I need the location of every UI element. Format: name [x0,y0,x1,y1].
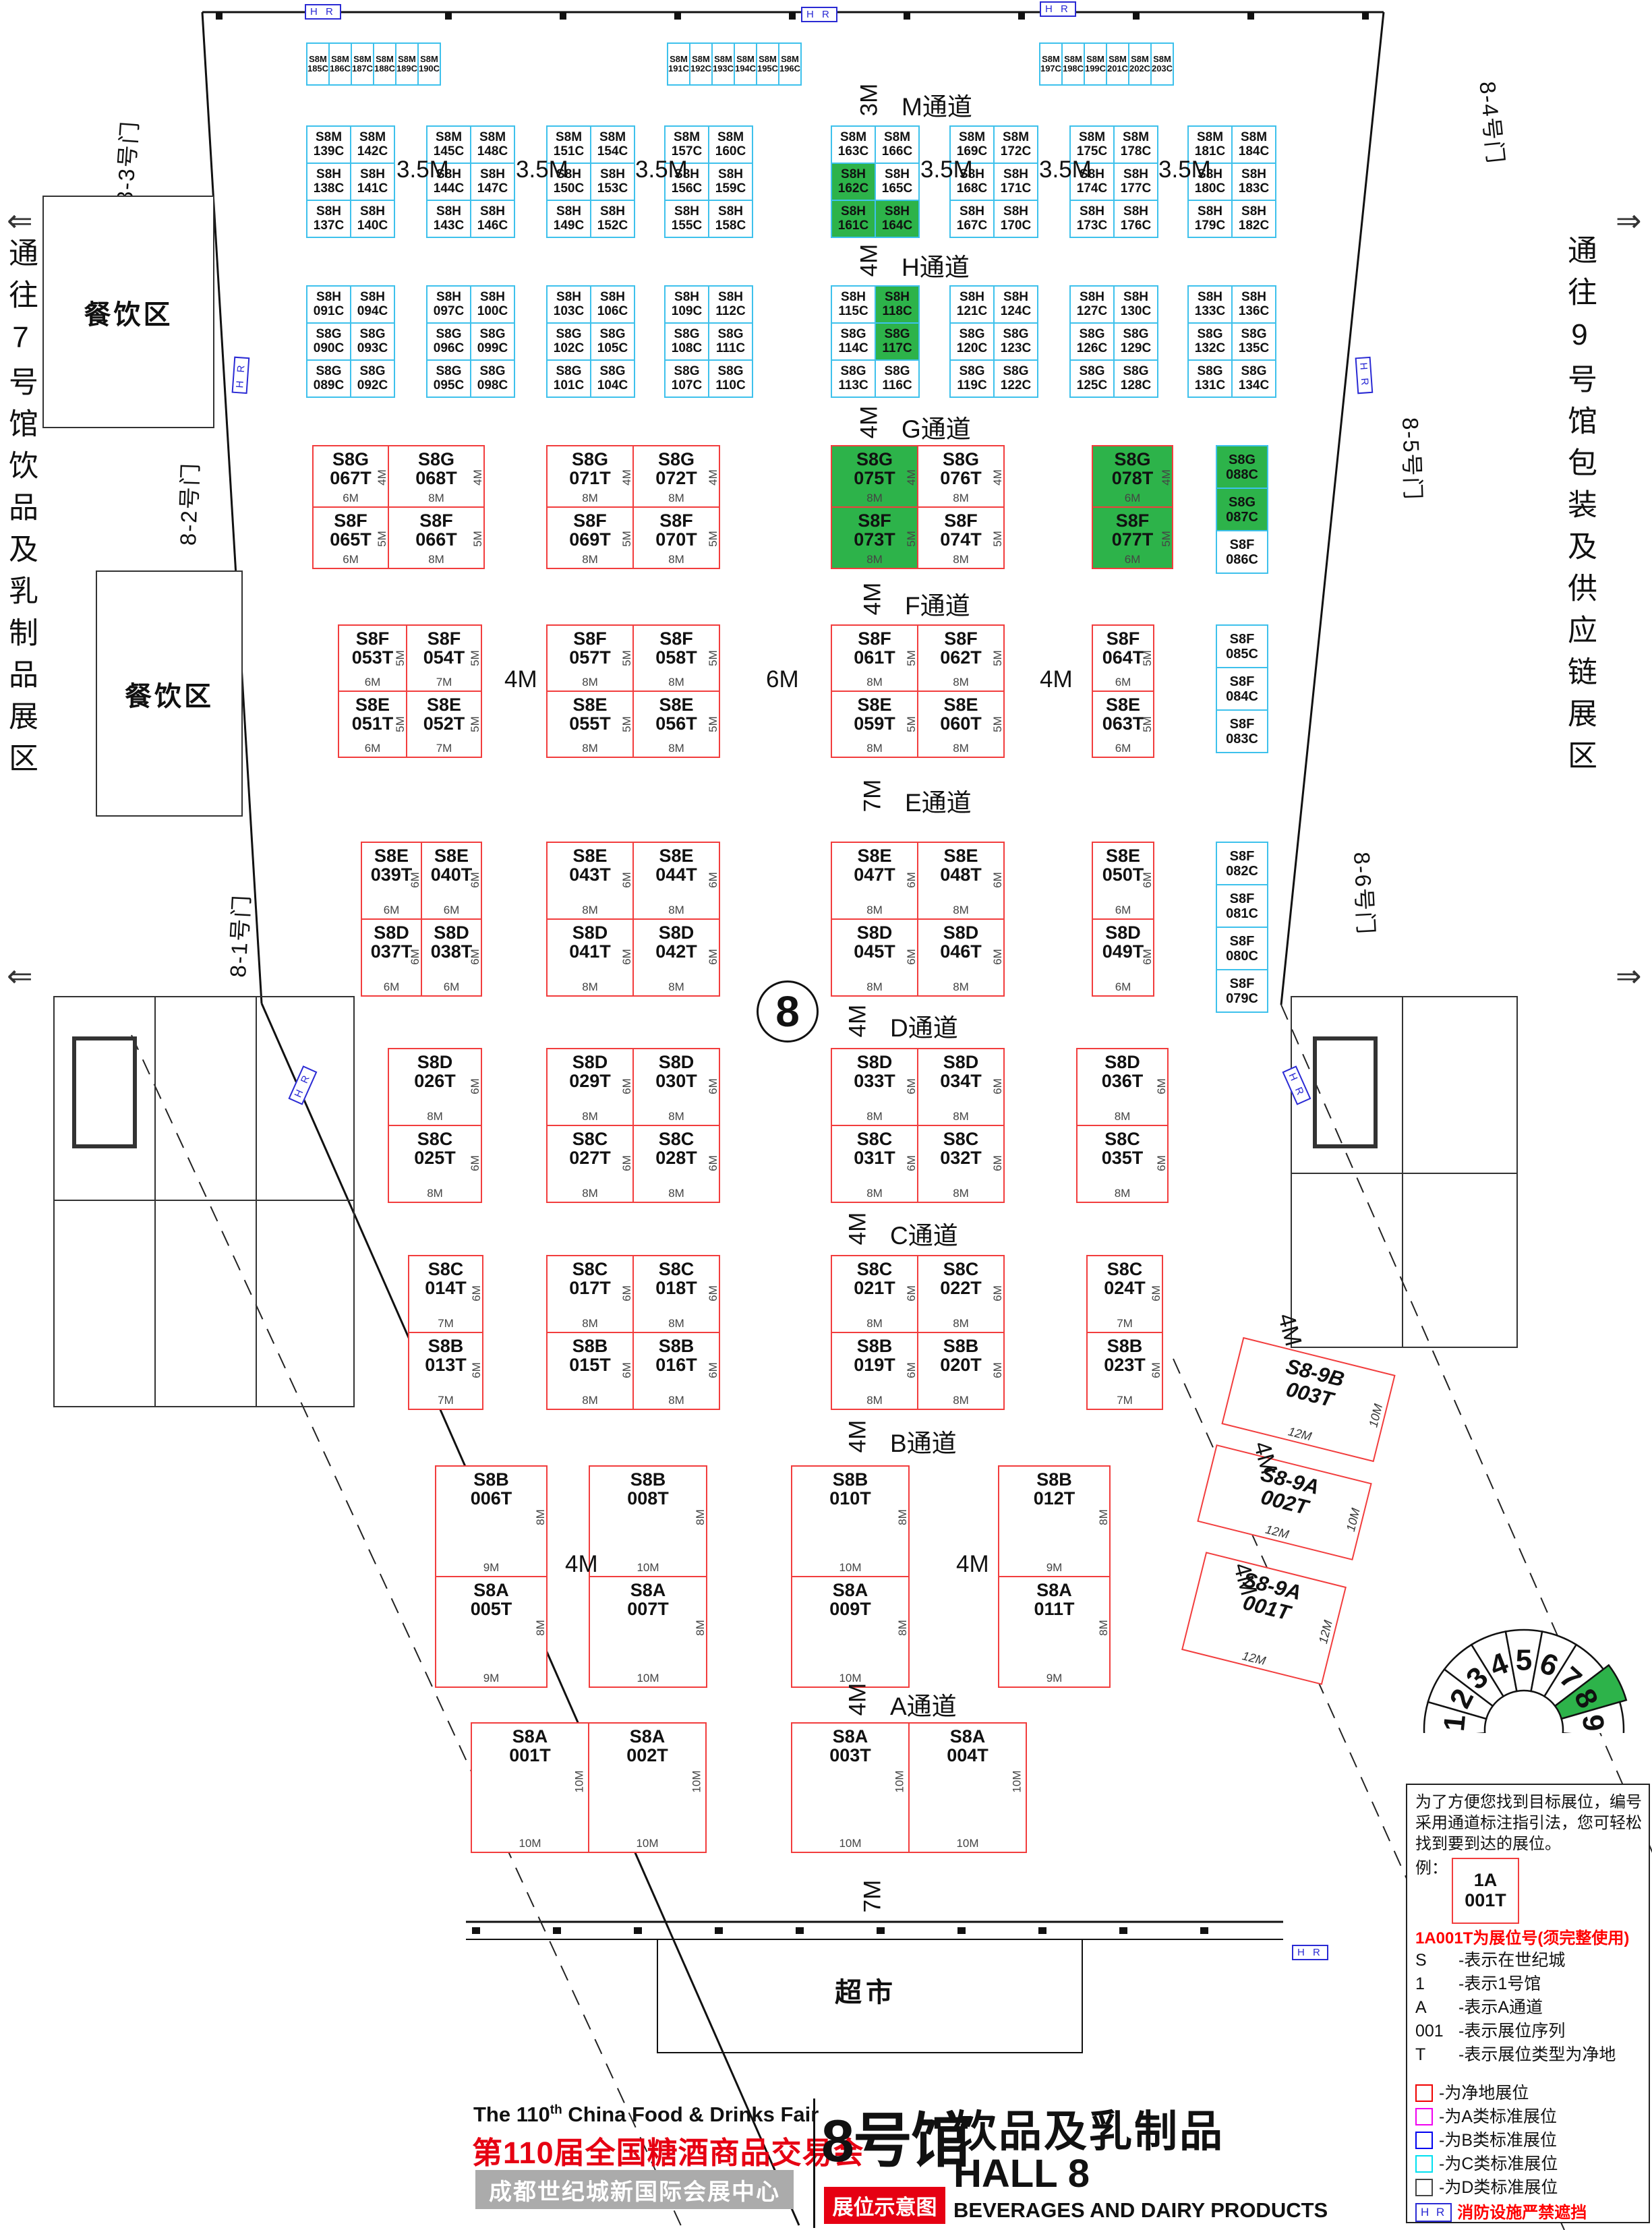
booth-S8A-009T: S8A 009T10M8M [791,1576,910,1688]
booth-S8H-159C: S8H159C [708,163,753,201]
booth-S8D-037T: S8D 037T6M6M [361,918,422,997]
route-arrow-icon: ⇒ [1616,958,1642,994]
booth-S8H-140C: S8H140C [350,200,395,238]
booth-S8D-033T: S8D 033T8M6M [831,1048,918,1126]
booth-S8A-005T: S8A 005T9M8M [435,1576,548,1688]
booth-S8G-096C: S8G096C [426,322,471,361]
booth-S8F-070T: S8F 070T8M5M [632,506,720,569]
booth-S8M-191C: S8M191C [667,42,690,86]
booth-S8F-066T: S8F 066T8M5M [388,506,485,569]
fair-title-en: The 110th China Food & Drinks Fair [473,2103,819,2127]
aisle-name-label: D通道 [890,1007,958,1044]
legend-code-row: 001-表示展位序列 [1415,2020,1643,2043]
booth-S8G-110C: S8G110C [708,359,753,398]
aisle-name-label: H通道 [902,247,970,283]
booth-S8H-136C: S8H136C [1231,285,1276,324]
booth-S8G-117C: S8G117C [875,322,920,361]
plan-tag: 展位示意图 [824,2187,945,2224]
aisle-width-label: 4M [844,1005,871,1038]
dining-area-box: 餐饮区 [42,196,214,428]
booth-S8D-042T: S8D 042T8M6M [632,918,720,997]
legend-note: 1A001T为展位号(须完整使用) [1415,1928,1643,1949]
booth-S8G-088C: S8G088C [1216,445,1268,489]
booth-S8D-041T: S8D 041T8M6M [546,918,634,997]
aisle-name-label: B通道 [890,1423,957,1459]
aisle-width-label: 4M [856,406,883,439]
booth-S8G-075T: S8G 075T8M4M [831,445,918,508]
booth-S8H-162C: S8H162C [831,163,876,201]
gap-dimension-label: 3.5M [920,156,973,183]
booth-S8E-050T: S8E 050T6M6M [1092,842,1154,920]
booth-S8H-130C: S8H130C [1113,285,1158,324]
booth-S8F-073T: S8F 073T8M5M [831,506,918,569]
gap-dimension-label: 4M [565,1551,598,1578]
booth-S8M-185C: S8M185C [306,42,330,86]
booth-S8G-102C: S8G102C [546,322,591,361]
hall-number-badge: 8 [757,980,819,1043]
booth-S8C-022T: S8C 022T8M6M [917,1255,1005,1333]
gap-dimension-label: 3.5M [396,156,449,183]
booth-S8G-119C: S8G119C [949,359,995,398]
booth-S8G-108C: S8G108C [664,322,709,361]
gap-dimension-label: 3.5M [635,156,688,183]
booth-S8A-007T: S8A 007T10M8M [589,1576,707,1688]
booth-S8H-164C: S8H164C [875,200,920,238]
gap-dimension-label: 4M [956,1551,989,1578]
aisle-width-label: 3M [856,84,883,117]
gap-dimension-label: 6M [766,666,799,693]
booth-S8G-131C: S8G131C [1187,359,1233,398]
booth-S8H-146C: S8H146C [470,200,515,238]
booth-S8M-154C: S8M154C [590,125,635,164]
booth-S8C-021T: S8C 021T8M6M [831,1255,918,1333]
booth-S8C-014T: S8C 014T7M6M [408,1255,483,1333]
booth-S8B-008T: S8B 008T10M8M [589,1465,707,1577]
booth-S8F-074T: S8F 074T8M5M [917,506,1005,569]
booth-S8G-076T: S8G 076T8M4M [917,445,1005,508]
booth-S8C-028T: S8C 028T8M6M [632,1125,720,1203]
booth-S8F-077T: S8F 077T6M5M [1092,506,1173,569]
route-to-hall7: 通往7号馆饮品及乳制品展区 [5,237,35,784]
hr-hydrant-box: H R [1292,1945,1328,1960]
booth-S8F-085C: S8F085C [1216,624,1268,668]
booth-S8H-153C: S8H153C [590,163,635,201]
booth-S8E-063T: S8E 063T6M5M [1092,691,1154,758]
booth-S8A-011T: S8A 011T9M8M [998,1576,1111,1688]
booth-S8H-124C: S8H124C [993,285,1038,324]
hall-selector-fan: 123456789 [1401,1605,1647,1733]
booth-S8E-039T: S8E 039T6M6M [361,842,422,920]
hall-walls [0,0,1652,2230]
booth-S8B-012T: S8B 012T9M8M [998,1465,1111,1577]
booth-S8H-179C: S8H179C [1187,200,1233,238]
aisle-name-label: E通道 [905,782,972,819]
swatch-#00E0F0 [1415,2155,1433,2173]
booth-S8G-089C: S8G089C [306,359,351,398]
fan-hall-number-9: 9 [1576,1713,1610,1732]
booth-S8F-083C: S8F083C [1216,709,1268,753]
booth-S8M-199C: S8M199C [1084,42,1107,86]
booth-S8M-172C: S8M172C [993,125,1038,164]
booth-S8H-171C: S8H171C [993,163,1038,201]
booth-S8M-196C: S8M196C [778,42,802,86]
booth-S8E-059T: S8E 059T8M5M [831,691,918,758]
booth-S8H-161C: S8H161C [831,200,876,238]
aisle-name-label: C通道 [890,1215,958,1252]
booth-S8F-065T: S8F 065T6M5M [312,506,389,569]
booth-S8G-104C: S8G104C [590,359,635,398]
booth-S8G-123C: S8G123C [993,322,1038,361]
booth-S8H-141C: S8H141C [350,163,395,201]
booth-S8M-202C: S8M202C [1128,42,1152,86]
aisle-width-label: 4M [844,1212,871,1245]
category-cn: 饮品及乳制品 [953,2097,1225,2159]
booth-S8B-015T: S8B 015T8M6M [546,1332,634,1410]
swatch-#F000F0 [1415,2108,1433,2125]
booth-S8G-128C: S8G128C [1113,359,1158,398]
booth-S8H-106C: S8H106C [590,285,635,324]
hr-hydrant-box: H R [1040,1,1076,17]
booth-S8B-023T: S8B 023T7M6M [1086,1332,1163,1410]
booth-S8H-173C: S8H173C [1069,200,1115,238]
booth-S8M-188C: S8M188C [373,42,396,86]
booth-S8D-029T: S8D 029T8M6M [546,1048,634,1126]
booth-S8G-067T: S8G 067T6M4M [312,445,389,508]
booth-S8G-090C: S8G090C [306,322,351,361]
booth-S8H-152C: S8H152C [590,200,635,238]
aisle-width-label: 7M [859,1880,886,1913]
booth-S8F-086C: S8F086C [1216,530,1268,574]
booth-S8H-176C: S8H176C [1113,200,1158,238]
booth-S8H-103C: S8H103C [546,285,591,324]
booth-S8G-068T: S8G 068T8M4M [388,445,485,508]
booth-S8G-105C: S8G105C [590,322,635,361]
supermarket-label: 超市 [835,1970,897,2009]
booth-S8D-030T: S8D 030T8M6M [632,1048,720,1126]
hr-hydrant-box: H R [305,4,341,20]
booth-S8G-099C: S8G099C [470,322,515,361]
booth-S8D-045T: S8D 045T8M6M [831,918,918,997]
swatch-#F00000 [1415,2084,1433,2102]
booth-S8F-084C: S8F084C [1216,667,1268,711]
booth-S8C-031T: S8C 031T8M6M [831,1125,918,1203]
booth-S8G-122C: S8G122C [993,359,1038,398]
booth-S8G-116C: S8G116C [875,359,920,398]
legend-panel: 为了方便您找到目标展位，编号采用通道标注指引法，您可轻松找到要到达的展位。 例：… [1406,1784,1650,2223]
booth-S8H-115C: S8H115C [831,285,876,324]
booth-S8H-149C: S8H149C [546,200,591,238]
booth-S8M-160C: S8M160C [708,125,753,164]
booth-S8C-024T: S8C 024T7M6M [1086,1255,1163,1333]
gap-dimension-label: 3.5M [516,156,568,183]
booth-S8H-121C: S8H121C [949,285,995,324]
booth-S8E-060T: S8E 060T8M5M [917,691,1005,758]
booth-S8H-094C: S8H094C [350,285,395,324]
booth-S8H-091C: S8H091C [306,285,351,324]
hr-hydrant-box: H R [232,357,250,394]
gap-dimension-label: 4M [504,666,537,693]
booth-S8F-058T: S8F 058T8M5M [632,624,720,692]
booth-S8G-113C: S8G113C [831,359,876,398]
booth-S8H-170C: S8H170C [993,200,1038,238]
booth-S8G-107C: S8G107C [664,359,709,398]
booth-S8G-126C: S8G126C [1069,322,1115,361]
legend-code-row: 1-表示1号馆 [1415,1972,1643,1996]
venue-bar: 成都世纪城新国际会展中心 [475,2170,794,2209]
fan-hall-number-1: 1 [1438,1713,1472,1732]
route-arrow-icon: ⇒ [1616,202,1642,239]
booth-S8G-095C: S8G095C [426,359,471,398]
booth-S8M-189C: S8M189C [395,42,419,86]
legend-intro: 为了方便您找到目标展位，编号采用通道标注指引法，您可轻松找到要到达的展位。 [1415,1792,1643,1855]
legend-swatch-row: -为B类标准展位 [1415,2129,1643,2152]
booth-S8H-165C: S8H165C [875,163,920,201]
booth-S8F-062T: S8F 062T8M5M [917,624,1005,692]
legend-swatch-row: -为A类标准展位 [1415,2105,1643,2129]
booth-S8H-118C: S8H118C [875,285,920,324]
booth-S8E-052T: S8E 052T7M5M [406,691,482,758]
booth-S8H-100C: S8H100C [470,285,515,324]
door-label-8-1: 8-1号门 [220,893,256,978]
booth-S8M-139C: S8M139C [306,125,351,164]
booth-S8H-127C: S8H127C [1069,285,1115,324]
aisle-name-label: F通道 [905,585,970,622]
gap-dimension-label: 3.5M [1158,156,1211,183]
booth-S8G-134C: S8G134C [1231,359,1276,398]
booth-S8E-044T: S8E 044T8M6M [632,842,720,920]
booth-S8E-043T: S8E 043T8M6M [546,842,634,920]
dining-area-box: 餐饮区 [96,570,243,817]
booth-S8H-133C: S8H133C [1187,285,1233,324]
booth-S8F-064T: S8F 064T6M5M [1092,624,1154,692]
fan-hall-number-5: 5 [1516,1644,1532,1677]
booth-S8B-016T: S8B 016T8M6M [632,1332,720,1410]
booth-S8G-101C: S8G101C [546,359,591,398]
booth-S8H-183C: S8H183C [1231,163,1276,201]
booth-S8H-177C: S8H177C [1113,163,1158,201]
door-label-8-3: 8-3号门 [107,119,145,205]
booth-S8M-194C: S8M194C [734,42,757,86]
booth-S8D-034T: S8D 034T8M6M [917,1048,1005,1126]
booth-S8F-069T: S8F 069T8M5M [546,506,634,569]
legend-code-row: T-表示展位类型为净地 [1415,2043,1643,2067]
booth-S8E-051T: S8E 051T6M5M [338,691,407,758]
legend-example-booth: 1A001T [1452,1858,1519,1924]
booth-S8M-198C: S8M198C [1061,42,1085,86]
booth-S8B-013T: S8B 013T7M6M [408,1332,483,1410]
booth-S8B-006T: S8B 006T9M8M [435,1465,548,1577]
service-rooms [54,997,1517,1407]
booth-S8G-111C: S8G111C [708,322,753,361]
booth-S8G-114C: S8G114C [831,322,876,361]
booth-S8E-055T: S8E 055T8M5M [546,691,634,758]
route-to-hall9: 通往9号馆包装及供应链展区 [1564,235,1594,782]
booth-S8G-078T: S8G 078T6M4M [1092,445,1173,508]
booth-S8E-040T: S8E 040T6M6M [421,842,482,920]
swatch-#444444 [1415,2179,1433,2196]
booth-S8A-003T: S8A 003T10M10M [791,1722,910,1853]
booth-S8M-195C: S8M195C [756,42,779,86]
booth-S8M-148C: S8M148C [470,125,515,164]
booth-S8M-166C: S8M166C [875,125,920,164]
booth-S8D-026T: S8D 026T8M6M [388,1048,482,1126]
aisle-width-label: 4M [856,244,883,277]
swatch-#0000F0 [1415,2132,1433,2149]
booth-S8H-137C: S8H137C [306,200,351,238]
booth-S8M-192C: S8M192C [689,42,713,86]
booth-S8A-001T: S8A 001T10M10M [471,1722,589,1853]
booth-S8H-097C: S8H097C [426,285,471,324]
booth-S8H-158C: S8H158C [708,200,753,238]
booth-S8M-187C: S8M187C [351,42,374,86]
fair-title-cn: 第110届全国糖酒商品交易会 [472,2128,864,2172]
category-en: BEVERAGES AND DAIRY PRODUCTS [953,2198,1328,2223]
booth-S8M-193C: S8M193C [711,42,735,86]
route-arrow-icon: ⇐ [7,202,33,239]
booth-S8F-082C: S8F082C [1216,842,1268,885]
booth-S8C-017T: S8C 017T8M6M [546,1255,634,1333]
route-arrow-icon: ⇐ [7,958,33,994]
legend-swatch-list: -为净地展位-为A类标准展位-为B类标准展位-为C类标准展位-为D类标准展位 [1415,2082,1643,2200]
booth-S8G-072T: S8G 072T8M4M [632,445,720,508]
aisle-name-label: M通道 [902,86,972,123]
booth-S8G-092C: S8G092C [350,359,395,398]
title-divider [813,2099,815,2228]
booth-S8E-048T: S8E 048T8M6M [917,842,1005,920]
booth-S8A-002T: S8A 002T10M10M [588,1722,707,1853]
legend-swatch-row: -为净地展位 [1415,2082,1643,2105]
hr-hydrant-box: H R [1415,2203,1452,2222]
hr-hydrant-box: H R [801,7,837,22]
booth-S8F-079C: S8F079C [1216,969,1268,1013]
door-label-8-5: 8-5号门 [1396,417,1431,501]
booth-S8G-098C: S8G098C [470,359,515,398]
booth-S8M-186C: S8M186C [328,42,352,86]
booth-S8G-093C: S8G093C [350,322,395,361]
booth-S8B-010T: S8B 010T10M8M [791,1465,910,1577]
aisle-width-label: 4M [844,1420,871,1453]
booth-S8H-167C: S8H167C [949,200,995,238]
booth-S8F-081C: S8F081C [1216,884,1268,928]
legend-code-row: A-表示A通道 [1415,1996,1643,2020]
aisle-width-label: 7M [859,780,886,813]
booth-S8G-125C: S8G125C [1069,359,1115,398]
booth-S8B-020T: S8B 020T8M6M [917,1332,1005,1410]
booth-S8H-143C: S8H143C [426,200,471,238]
booth-S8M-184C: S8M184C [1231,125,1276,164]
booth-S8F-057T: S8F 057T8M5M [546,624,634,692]
booth-S8H-112C: S8H112C [708,285,753,324]
door-label-8-2: 8-2号门 [170,461,205,546]
booth-S8E-056T: S8E 056T8M5M [632,691,720,758]
booth-S8H-182C: S8H182C [1231,200,1276,238]
hr-hydrant-box: H R [1355,357,1374,394]
aisle-width-label: 4M [859,583,886,616]
aisle-name-label: A通道 [890,1686,957,1722]
booth-S8F-053T: S8F 053T6M5M [338,624,407,692]
booth-S8G-087C: S8G087C [1216,488,1268,531]
booth-S8H-138C: S8H138C [306,163,351,201]
booth-S8D-038T: S8D 038T6M6M [421,918,482,997]
booth-S8M-203C: S8M203C [1150,42,1174,86]
legend-swatch-row: -为C类标准展位 [1415,2152,1643,2176]
booth-S8G-120C: S8G120C [949,322,995,361]
booth-S8M-190C: S8M190C [417,42,441,86]
booth-S8C-035T: S8C 035T8M6M [1076,1125,1169,1203]
booth-S8D-036T: S8D 036T8M6M [1076,1048,1169,1126]
gap-dimension-label: 4M [1040,666,1073,693]
hall-title-en: HALL 8 [953,2151,1090,2196]
legend-example-label: 例： [1415,1858,1448,1879]
booth-S8F-054T: S8F 054T7M5M [406,624,482,692]
aisle-name-label: G通道 [902,409,971,445]
legend-code-row: S-表示在世纪城 [1415,1949,1643,1972]
booth-S8C-018T: S8C 018T8M6M [632,1255,720,1333]
booth-S8H-147C: S8H147C [470,163,515,201]
booth-S8M-201C: S8M201C [1106,42,1129,86]
aisle-width-label: 4M [844,1683,871,1716]
booth-S8A-004T: S8A 004T10M10M [908,1722,1027,1853]
legend-swatch-row: -为D类标准展位 [1415,2176,1643,2200]
booth-S8G-135C: S8G135C [1231,322,1276,361]
booth-S8C-025T: S8C 025T8M6M [388,1125,482,1203]
booth-S8D-049T: S8D 049T6M6M [1092,918,1154,997]
booth-S8G-129C: S8G129C [1113,322,1158,361]
gap-dimension-label: 3.5M [1039,156,1092,183]
booth-S8C-027T: S8C 027T8M6M [546,1125,634,1203]
booth-S8M-178C: S8M178C [1113,125,1158,164]
door-label-8-6: 8-6号门 [1347,851,1384,936]
booth-S8G-071T: S8G 071T8M4M [546,445,634,508]
booth-S8B-019T: S8B 019T8M6M [831,1332,918,1410]
booth-S8G-132C: S8G132C [1187,322,1233,361]
floor-plan: 123456789 8 超市 The 110th China Food & Dr… [0,0,1652,2230]
booth-S8M-142C: S8M142C [350,125,395,164]
booth-S8C-032T: S8C 032T8M6M [917,1125,1005,1203]
booth-S8F-080C: S8F080C [1216,927,1268,970]
hall-title-cn: 8号馆 [821,2093,969,2179]
fire-note: 消防设施严禁遮挡 [1457,2202,1587,2223]
legend-code-list: S-表示在世纪城1-表示1号馆A-表示A通道001-表示展位序列T-表示展位类型… [1415,1949,1643,2067]
booth-S8E-047T: S8E 047T8M6M [831,842,918,920]
booth-S8M-197C: S8M197C [1039,42,1063,86]
booth-S8M-163C: S8M163C [831,125,876,164]
booth-S8D-046T: S8D 046T8M6M [917,918,1005,997]
booth-S8F-061T: S8F 061T8M5M [831,624,918,692]
booth-S8H-155C: S8H155C [664,200,709,238]
booth-S8H-109C: S8H109C [664,285,709,324]
